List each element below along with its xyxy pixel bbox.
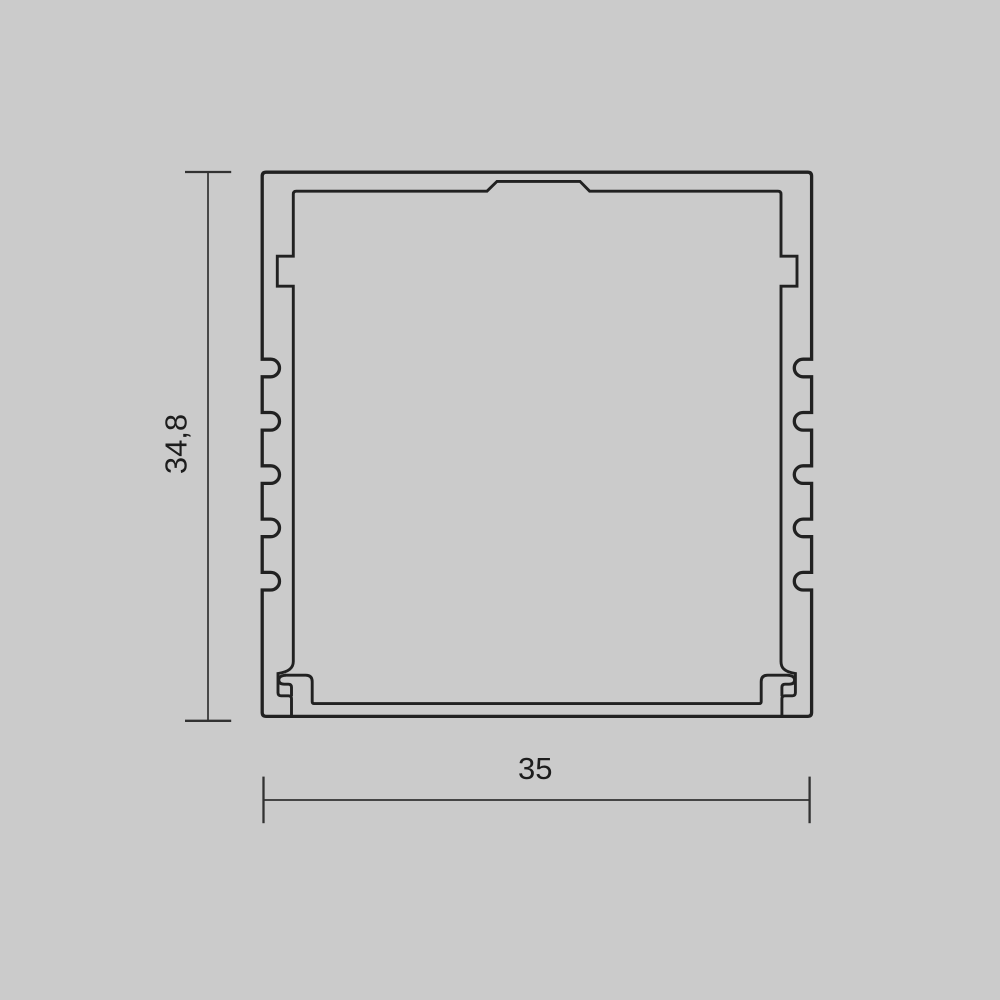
svg-text:34,8: 34,8	[159, 414, 194, 474]
svg-text:35: 35	[518, 751, 552, 786]
